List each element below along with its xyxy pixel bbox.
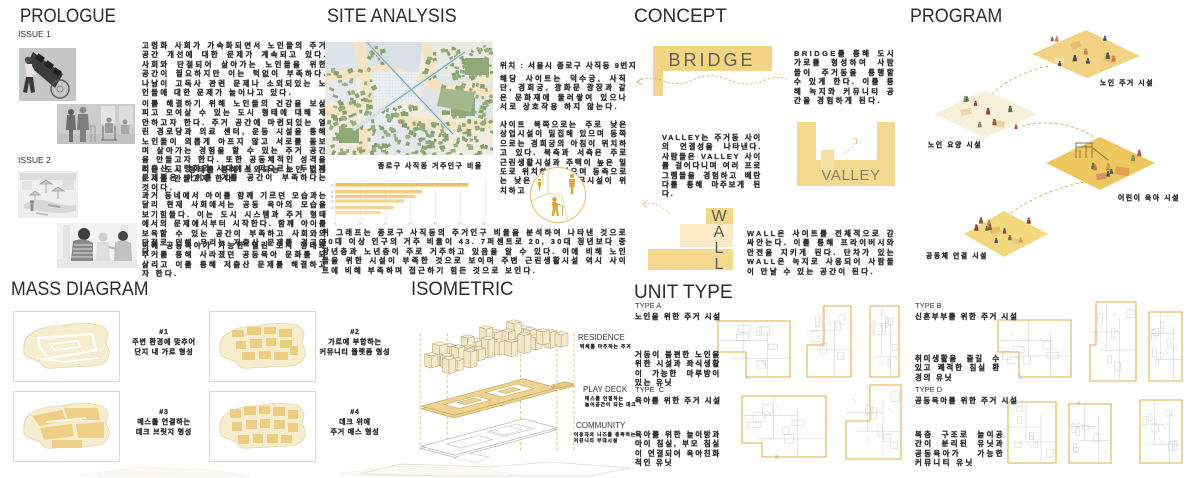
- svg-text:10: 10: [331, 206, 335, 210]
- svg-text:L: L: [715, 240, 724, 257]
- svg-text:20: 20: [383, 222, 387, 226]
- svg-text:30: 30: [408, 222, 412, 226]
- svg-text:40: 40: [433, 222, 437, 226]
- svg-text:10: 10: [358, 222, 362, 226]
- svg-text:L: L: [715, 256, 724, 272]
- svg-text:60: 60: [482, 222, 486, 226]
- svg-text:40: 40: [331, 190, 335, 194]
- svg-text:A: A: [714, 224, 725, 241]
- svg-text:BRIDGE: BRIDGE: [668, 50, 755, 70]
- svg-text:20: 20: [331, 200, 335, 204]
- svg-text:W: W: [711, 208, 727, 225]
- svg-text:30: 30: [331, 195, 335, 199]
- svg-text:VALLEY: VALLEY: [821, 167, 880, 184]
- svg-text:50: 50: [458, 222, 462, 226]
- svg-text:50: 50: [331, 184, 335, 188]
- svg-text:0: 0: [334, 222, 336, 226]
